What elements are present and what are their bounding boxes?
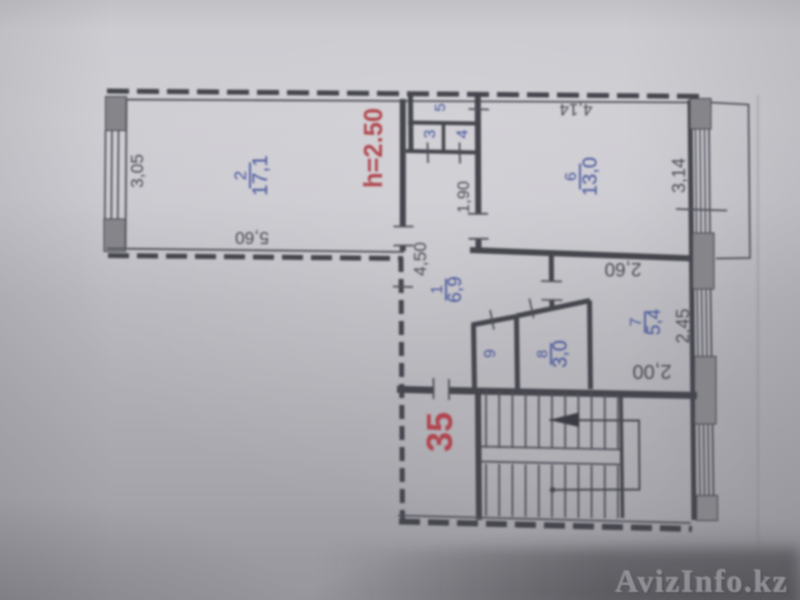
- svg-text:AvizInfo.kz: AvizInfo.kz: [615, 563, 788, 599]
